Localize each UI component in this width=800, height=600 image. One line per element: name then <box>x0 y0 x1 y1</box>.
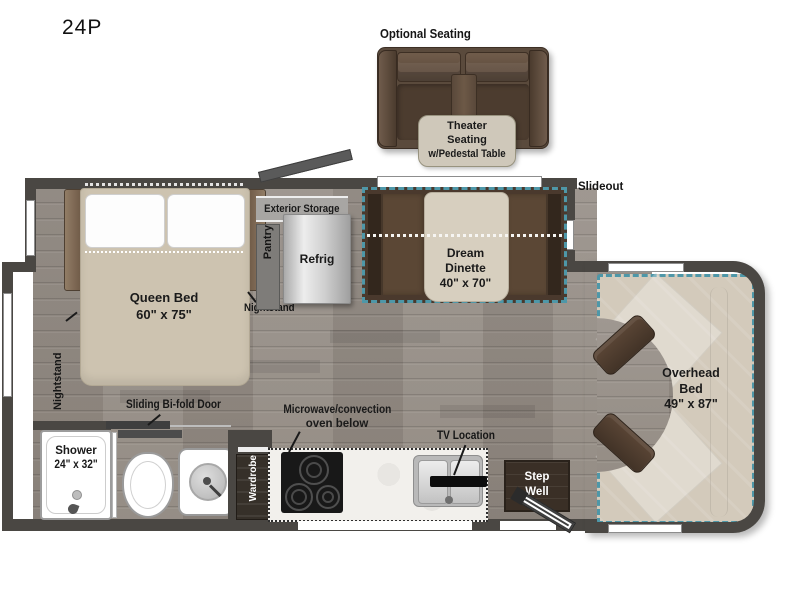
queen-bed <box>80 188 250 386</box>
pantry-label: Pantry <box>262 225 274 259</box>
bed-pillow-right <box>167 194 245 248</box>
dinette-bench-left-back <box>368 194 381 295</box>
overhead-bed-line2: Bed <box>636 382 746 398</box>
bifold-door-panel-2 <box>118 430 182 438</box>
microwave-label: Microwave/convection oven below <box>262 403 412 432</box>
window-bottom-kitchen <box>298 521 472 530</box>
cooktop <box>281 452 343 513</box>
sofa-armrest-right <box>529 50 548 147</box>
dinette-slideout: Dream Dinette 40" x 70" <box>362 187 567 303</box>
overhead-bed-label: Overhead Bed 49" x 87" <box>636 366 746 413</box>
refrigerator: Refrig <box>283 214 351 304</box>
queen-bed-label: Queen Bed 60" x 75" <box>94 290 234 324</box>
shower-name: Shower <box>42 444 110 458</box>
theater-seating-callout: Theater Seating w/Pedestal Table <box>418 115 516 167</box>
burner-top <box>299 455 329 485</box>
optional-seating-heading: Optional Seating <box>380 26 483 41</box>
bed-blanket-seam <box>85 251 243 253</box>
bifold-door-panel-1 <box>106 421 170 429</box>
floor-plank-patch <box>330 330 440 343</box>
sofa-armrest-left <box>378 50 397 147</box>
overhead-bed-line1: Overhead <box>636 366 746 382</box>
refrig-label: Refrig <box>300 252 335 266</box>
shower-label: Shower 24" x 32" <box>42 444 110 473</box>
window-left-upper <box>26 200 35 256</box>
bed-pillow-left <box>85 194 165 248</box>
dinette-name-line1: Dream <box>424 246 507 261</box>
floor-plank-patch <box>440 405 535 418</box>
shower-dims: 24" x 32" <box>46 458 106 472</box>
shower-drain <box>72 490 82 500</box>
wardrobe-label: Wardrobe <box>248 455 259 501</box>
tv-bar <box>430 476 487 487</box>
pantry-cabinet: Pantry <box>256 224 280 310</box>
toilet <box>122 452 174 518</box>
wall-bath-top <box>33 421 111 430</box>
wardrobe-cabinet: Wardrobe <box>236 454 270 520</box>
shower-glass-edge <box>112 432 117 518</box>
shower: Shower 24" x 32" <box>40 430 112 520</box>
wardrobe-top-shelf <box>238 447 268 452</box>
floor-plank-patch <box>250 360 320 373</box>
callout-line2: Seating <box>419 134 515 148</box>
bath-sink-vanity <box>178 448 234 516</box>
dinette-name-line2: Dinette <box>424 261 507 276</box>
step-well-line1: Step <box>506 470 568 485</box>
window-left-lower <box>3 293 12 397</box>
queen-bed-name: Queen Bed <box>94 290 234 307</box>
callout-line3: w/Pedestal Table <box>425 148 509 162</box>
model-label: 24P <box>62 16 102 40</box>
window-cab-bottom <box>608 524 682 533</box>
tv-location-label: TV Location <box>437 430 503 442</box>
wall-top-dotted-trim <box>85 183 243 186</box>
dinette-bench-right-back <box>548 194 561 295</box>
burner-bottom-right <box>316 485 340 509</box>
queen-bed-dims: 60" x 75" <box>94 307 234 324</box>
overhead-bed-dims: 49" x 87" <box>636 397 746 413</box>
slide-travel-line <box>367 234 562 237</box>
callout-line1: Theater <box>419 120 515 134</box>
dinette-bench-left-seat <box>381 194 427 295</box>
sliding-door-label: Sliding Bi-fold Door <box>126 399 234 411</box>
dinette-label: Dream Dinette 40" x 70" <box>424 246 507 291</box>
burner-bottom-left <box>285 483 313 511</box>
entry-door-opening <box>500 521 556 530</box>
slideout-label: Slideout <box>578 181 623 193</box>
floorplan-24p: 24P Optional Seating Theater Seating w/P… <box>0 0 800 600</box>
window-cab-top <box>608 263 684 272</box>
sink-faucet <box>445 496 453 504</box>
dinette-dims: 40" x 70" <box>424 276 507 291</box>
toilet-seat <box>130 461 166 509</box>
nightstand-left-label: Nightstand <box>52 292 64 410</box>
